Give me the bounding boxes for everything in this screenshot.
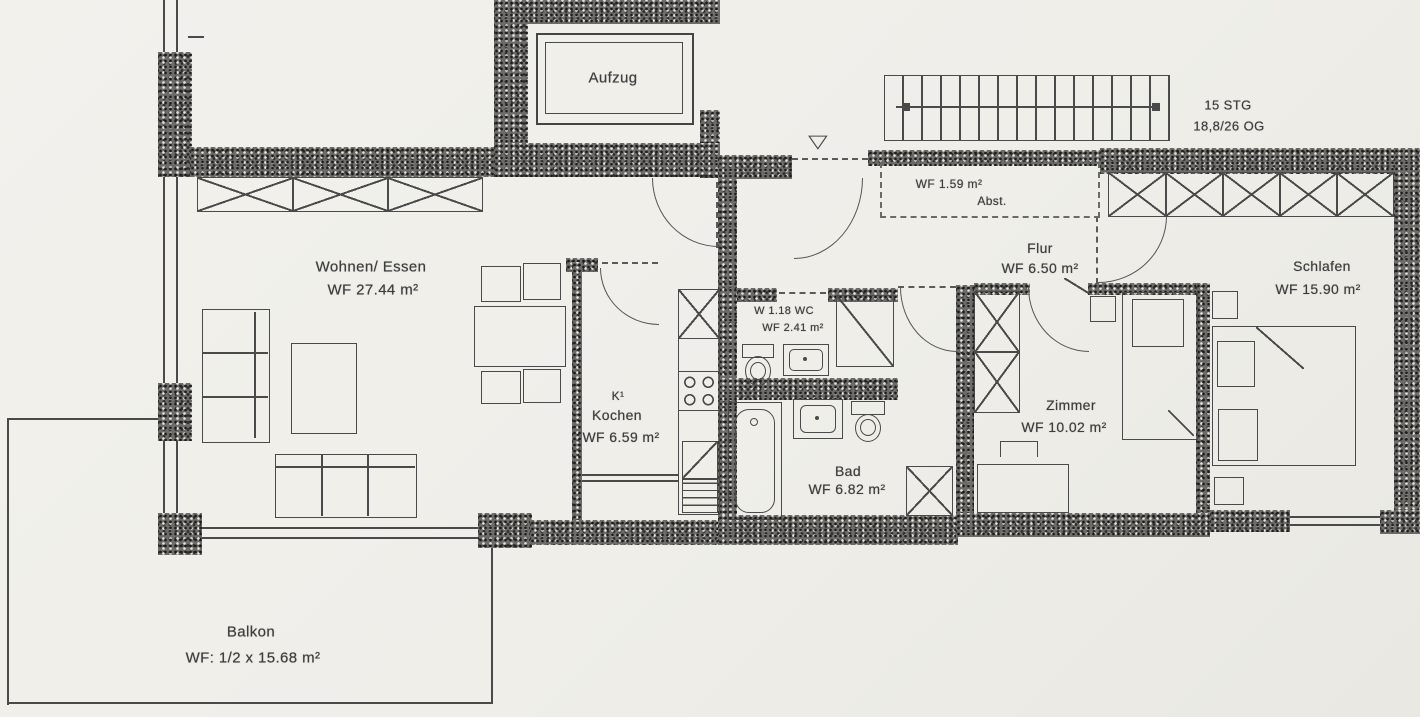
stairs-label-line1: 15 STG: [1204, 98, 1251, 113]
stove: [678, 371, 720, 411]
livingroom-window-line: [196, 537, 482, 539]
stair-line-start-dot: [902, 103, 910, 111]
toilet-bowl: [750, 362, 766, 380]
storage-area-outline: [880, 162, 1100, 218]
washing-machine: [906, 466, 953, 516]
wardrobe: [1222, 172, 1281, 217]
coffee-table: [291, 343, 357, 434]
sofa: [202, 309, 270, 443]
wall: [190, 147, 502, 177]
dining-table: [474, 306, 566, 367]
kitchen-opening-dashes: [602, 262, 658, 264]
chair: [481, 266, 521, 302]
entry-door-arc: [794, 178, 863, 259]
dresser: [977, 464, 1069, 513]
room-label-abst: Abst.: [977, 194, 1006, 208]
sofa: [275, 454, 417, 518]
wall: [956, 285, 974, 520]
sofa-backrest-line: [254, 312, 256, 438]
balcony-outline: [7, 702, 493, 704]
wardrobe: [197, 177, 294, 212]
schlafen-window-line: [1288, 524, 1382, 526]
entrance-marker-icon: ▽: [808, 132, 828, 151]
pillow: [1132, 299, 1184, 347]
pillow: [1217, 341, 1255, 387]
shelf: [1000, 441, 1038, 457]
floor-plan-canvas: Aufzug 15 STG 18,8/26 OG ▽ WF 1.59 m² Ab…: [0, 0, 1420, 717]
chair: [481, 371, 521, 404]
kitchen-counter-line: [582, 480, 678, 482]
bad-door-arc: [900, 287, 957, 352]
balcony-outline: [491, 524, 493, 704]
room-area-bad: WF 6.82 m²: [808, 481, 885, 497]
kitchen-sink: [682, 441, 718, 479]
entry-threshold-dashes: [792, 158, 868, 160]
wall: [1100, 148, 1420, 174]
sofa-backrest-line: [275, 466, 415, 468]
kitchen-counter-line: [582, 474, 678, 476]
chair: [523, 263, 561, 300]
balcony-outline: [7, 418, 9, 705]
room-area-flur: WF 6.50 m²: [1001, 260, 1078, 276]
wall: [530, 520, 720, 545]
wall: [956, 513, 1210, 537]
wall: [718, 155, 792, 179]
wall: [158, 513, 202, 555]
wall-tick: [188, 36, 204, 38]
room-label-bad: Bad: [835, 463, 861, 479]
room-tag-kochen: K¹: [612, 389, 625, 403]
shower: [836, 295, 894, 367]
wardrobe: [1108, 172, 1167, 217]
room-area-wohnen: WF 27.44 m²: [327, 282, 418, 299]
kitchen-drainer: [682, 479, 718, 513]
sofa-divider: [321, 454, 323, 516]
room-label-wohnen: Wohnen/ Essen: [316, 259, 427, 276]
sofa-divider: [202, 352, 268, 354]
chair: [523, 369, 561, 403]
wardrobe: [1165, 172, 1224, 217]
room-label-flur: Flur: [1027, 240, 1053, 256]
wardrobe: [387, 177, 483, 212]
elevator-shaft-wall: [494, 0, 720, 24]
wardrobe: [974, 291, 1020, 353]
zimmer-door-leaf: [1064, 278, 1090, 294]
room-area-zimmer: WF 10.02 m²: [1021, 419, 1106, 435]
room-label-kochen: Kochen: [592, 407, 642, 423]
stair-line-end-dot: [1152, 103, 1160, 111]
wall: [158, 52, 192, 177]
wall: [566, 258, 598, 272]
livingroom-door-arc: [652, 178, 719, 247]
balcony-outline: [7, 418, 162, 420]
blanket-fold: [1256, 327, 1304, 369]
wc-wall: [737, 288, 777, 302]
schlafen-door-arc: [1098, 216, 1167, 283]
wall: [1394, 148, 1420, 532]
schlafen-window-line: [1288, 516, 1382, 518]
room-area-kochen: WF 6.59 m²: [582, 429, 659, 445]
sofa-divider: [202, 396, 268, 398]
staircase: [884, 75, 1170, 141]
fridge: [678, 289, 720, 339]
room-area-schlafen: WF 15.90 m²: [1275, 281, 1360, 297]
room-label-wc: W 1.18 WC: [754, 305, 814, 317]
wardrobe: [974, 351, 1020, 413]
wall: [158, 383, 192, 441]
elevator-shaft-wall: [494, 143, 720, 177]
kitchen-partition-wall: [572, 262, 582, 520]
kitchen-door-arc: [600, 268, 659, 325]
wc-bad-divider-wall: [718, 378, 898, 400]
bathtub-drain: [750, 418, 758, 426]
room-label-zimmer: Zimmer: [1046, 397, 1096, 413]
wardrobe: [1336, 172, 1394, 217]
sofa-divider: [367, 454, 369, 516]
room-label-schlafen: Schlafen: [1293, 258, 1351, 274]
nightstand: [1212, 291, 1238, 319]
room-area-abst: WF 1.59 m²: [916, 177, 983, 191]
toilet-tank: [851, 401, 885, 415]
room-area-balkon: WF: 1/2 x 15.68 m²: [186, 650, 321, 667]
wall: [1210, 510, 1290, 532]
room-area-wc: WF 2.41 m²: [762, 322, 823, 334]
nightstand: [1090, 296, 1116, 322]
sink-drain: [815, 416, 819, 420]
sink-drain: [803, 357, 807, 361]
wall: [478, 513, 532, 548]
stair-direction-line: [896, 106, 1154, 108]
stairs-label-line2: 18,8/26 OG: [1193, 119, 1264, 134]
wall: [1196, 283, 1210, 520]
pillow: [1218, 409, 1258, 461]
zimmer-door-arc: [1028, 287, 1089, 352]
nightstand: [1214, 477, 1244, 505]
wc-opening-dashes: [779, 292, 826, 294]
wall: [1380, 510, 1420, 534]
toilet-bowl: [860, 419, 876, 436]
blanket-fold: [1168, 410, 1194, 436]
room-label-aufzug: Aufzug: [588, 70, 637, 87]
livingroom-window-line: [196, 527, 482, 529]
wardrobe: [292, 177, 389, 212]
room-label-balkon: Balkon: [227, 624, 275, 641]
wardrobe: [1279, 172, 1338, 217]
